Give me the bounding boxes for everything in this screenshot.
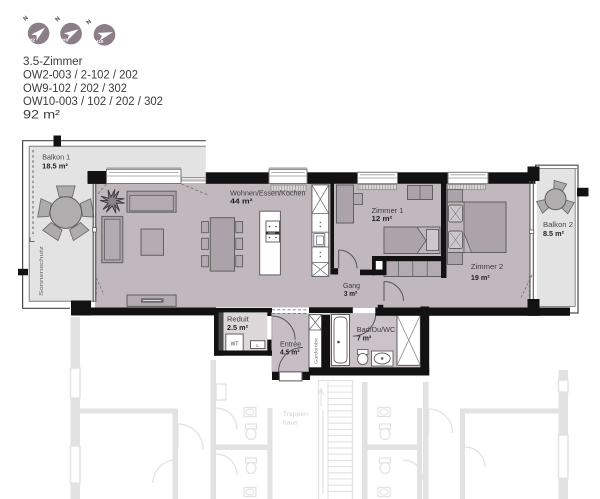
svg-text:12 m²: 12 m² bbox=[372, 214, 393, 223]
svg-text:3 m²: 3 m² bbox=[344, 289, 358, 298]
svg-text:Balkon 1: Balkon 1 bbox=[42, 153, 70, 162]
svg-text:WT: WT bbox=[231, 342, 239, 348]
svg-text:Zimmer 2: Zimmer 2 bbox=[471, 262, 503, 271]
svg-text:L: L bbox=[256, 343, 259, 348]
svg-text:18.5 m²: 18.5 m² bbox=[42, 161, 68, 170]
svg-text:N: N bbox=[55, 16, 62, 23]
svg-text:H2: H2 bbox=[29, 37, 35, 42]
svg-text:19 m²: 19 m² bbox=[471, 273, 490, 282]
svg-text:Treppen-: Treppen- bbox=[283, 411, 310, 418]
svg-text:OW10-003 / 102 / 202 / 302: OW10-003 / 102 / 202 / 302 bbox=[23, 94, 163, 108]
svg-text:8.5 m²: 8.5 m² bbox=[543, 229, 565, 238]
svg-text:Garderobe: Garderobe bbox=[313, 337, 318, 364]
svg-text:Sonnenschutz: Sonnenschutz bbox=[39, 245, 45, 296]
svg-text:Balkon 2: Balkon 2 bbox=[543, 220, 573, 229]
svg-text:44 m²: 44 m² bbox=[230, 196, 253, 205]
svg-text:H10: H10 bbox=[95, 39, 104, 44]
svg-text:3.5-Zimmer: 3.5-Zimmer bbox=[23, 54, 83, 68]
svg-text:92 m²: 92 m² bbox=[23, 108, 60, 122]
svg-text:N: N bbox=[23, 15, 30, 22]
svg-text:Bad/Du/WC: Bad/Du/WC bbox=[357, 325, 396, 334]
svg-text:N: N bbox=[86, 19, 93, 26]
svg-text:haus: haus bbox=[283, 420, 298, 427]
svg-text:4.5 m²: 4.5 m² bbox=[280, 348, 300, 357]
svg-text:2.5 m²: 2.5 m² bbox=[227, 323, 249, 332]
svg-text:OW2-003 / 2-102 / 202: OW2-003 / 2-102 / 202 bbox=[23, 67, 138, 81]
svg-text:OW9-102 / 202 / 302: OW9-102 / 202 / 302 bbox=[23, 81, 127, 95]
svg-text:H9: H9 bbox=[62, 38, 68, 43]
